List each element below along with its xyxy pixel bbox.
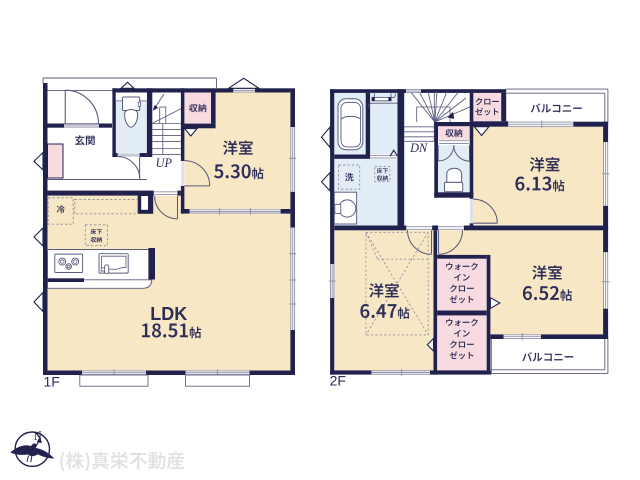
svg-text:2F: 2F <box>330 372 346 388</box>
svg-text:LDK: LDK <box>150 304 187 324</box>
svg-text:UP: UP <box>156 156 173 170</box>
svg-text:DN: DN <box>409 141 428 155</box>
svg-text:1F: 1F <box>44 374 60 390</box>
